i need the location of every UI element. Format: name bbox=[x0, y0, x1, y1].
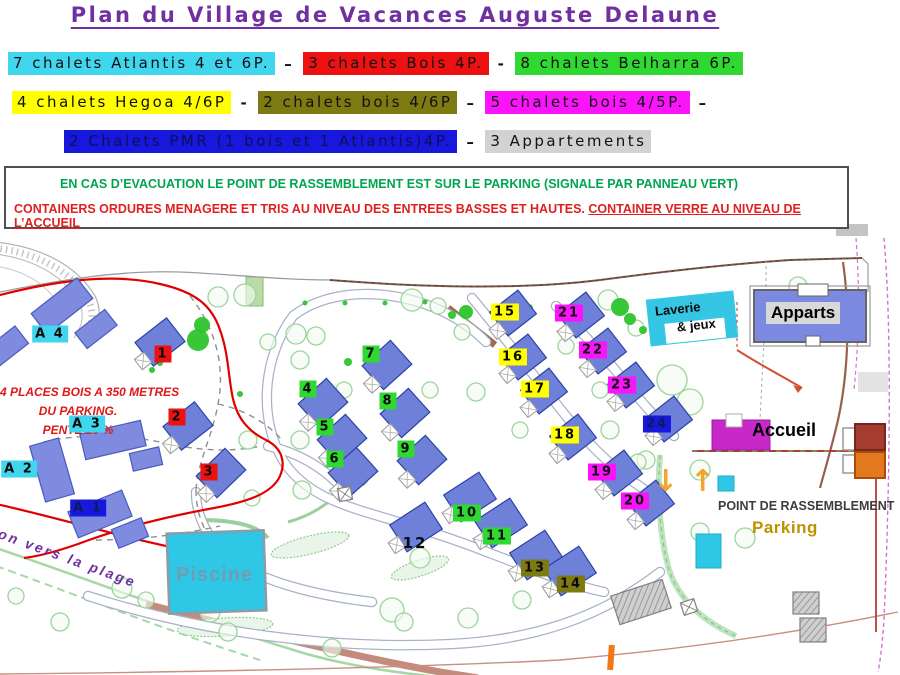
tree bbox=[512, 422, 528, 438]
legend-item: 8 chalets Belharra 6P. bbox=[515, 52, 743, 75]
legend-separator: – bbox=[466, 94, 476, 112]
chalet-marker-9: 9 bbox=[397, 441, 414, 458]
wood-places-note-line1: 4 PLACES BOIS A 350 METRES bbox=[0, 383, 156, 402]
notice-box: EN CAS D’EVACUATION LE POINT DE RASSEMBL… bbox=[4, 166, 849, 229]
tree bbox=[208, 287, 228, 307]
legend-item: 3 Appartements bbox=[485, 130, 651, 153]
page: Plan du Village de Vacances Auguste Dela… bbox=[0, 0, 900, 675]
legend-item: 2 Chalets PMR (1 bois et 1 Atlantis)4P. bbox=[64, 130, 457, 153]
chalet-marker-15: 15 bbox=[491, 304, 519, 321]
tree bbox=[458, 608, 478, 628]
legend-separator: – bbox=[699, 94, 709, 112]
chalet-marker-12: 12 bbox=[400, 533, 431, 553]
shrub bbox=[448, 311, 456, 319]
shrub bbox=[624, 313, 636, 325]
shrub bbox=[611, 298, 629, 316]
chalet-building bbox=[129, 447, 162, 471]
small-pool-2 bbox=[718, 476, 734, 491]
tree bbox=[513, 591, 531, 609]
tree bbox=[454, 324, 470, 340]
chalet-marker-5: 5 bbox=[316, 419, 333, 436]
containers-notice: CONTAINERS ORDURES MENAGERE ET TRIS AU N… bbox=[14, 202, 847, 230]
outbuilding bbox=[800, 618, 826, 642]
shrub bbox=[639, 326, 647, 334]
chalet-marker-22: 22 bbox=[579, 342, 607, 359]
legend-row-2: 4 chalets Hegoa 4/6P-2 chalets bois 4/6P… bbox=[12, 91, 709, 114]
chalet-marker-13: 13 bbox=[521, 560, 549, 577]
tree bbox=[592, 382, 608, 398]
legend-row-3: 2 Chalets PMR (1 bois et 1 Atlantis)4P.–… bbox=[64, 130, 651, 153]
tree bbox=[323, 639, 341, 657]
chalet-marker-4: 4 bbox=[299, 381, 316, 398]
chalet-marker-16: 16 bbox=[499, 349, 527, 366]
tree bbox=[291, 351, 309, 369]
chalet-marker-A3: A 3 bbox=[69, 416, 105, 433]
chalet-marker-8: 8 bbox=[379, 393, 396, 410]
shrub bbox=[303, 301, 308, 306]
tree bbox=[51, 613, 69, 631]
legend-item: 2 chalets bois 4/6P bbox=[258, 91, 457, 114]
tree bbox=[467, 383, 485, 401]
tree bbox=[601, 421, 619, 439]
legend-separator: – bbox=[284, 55, 294, 73]
chalet-marker-18: 18 bbox=[551, 427, 579, 444]
arrow-up-icon: ↑ bbox=[690, 464, 715, 499]
chalet-marker-23: 23 bbox=[608, 377, 636, 394]
chalet-marker-20: 20 bbox=[621, 493, 649, 510]
legend-item: 4 chalets Hegoa 4/6P bbox=[12, 91, 231, 114]
chalet-marker-10: 10 bbox=[453, 505, 481, 522]
shrub bbox=[237, 391, 243, 397]
legend-row-1: 7 chalets Atlantis 4 et 6P.–3 chalets Bo… bbox=[8, 52, 743, 75]
page-title: Plan du Village de Vacances Auguste Dela… bbox=[0, 3, 790, 27]
outbuilding bbox=[611, 579, 672, 624]
chalet-marker-17: 17 bbox=[521, 381, 549, 398]
chalet-building bbox=[0, 326, 29, 368]
chalet-marker-A2: A 2 bbox=[1, 461, 37, 478]
tree bbox=[307, 327, 325, 345]
outbuilding bbox=[337, 486, 352, 501]
containers-notice-main: CONTAINERS ORDURES MENAGERE ET TRIS AU N… bbox=[14, 202, 588, 216]
chalet-marker-A4: A 4 bbox=[32, 326, 68, 343]
tree bbox=[395, 613, 413, 631]
chalet-marker-14: 14 bbox=[557, 576, 585, 593]
reception-label: Accueil bbox=[752, 420, 816, 441]
parking-label: Parking bbox=[752, 518, 818, 538]
legend-separator: – bbox=[466, 133, 476, 151]
tree bbox=[260, 334, 276, 350]
chalet-marker-1: 1 bbox=[154, 346, 171, 363]
outbuilding bbox=[793, 592, 819, 614]
tree bbox=[286, 324, 306, 344]
tree bbox=[8, 588, 24, 604]
tree bbox=[219, 623, 237, 641]
chalet-marker-3: 3 bbox=[200, 464, 217, 481]
legend-item: 5 chalets bois 4/5P. bbox=[485, 91, 689, 114]
assembly-point-label: POINT DE RASSEMBLEMENT bbox=[718, 499, 894, 513]
tree bbox=[138, 592, 154, 608]
laundry-label-line2: & jeux bbox=[676, 313, 737, 334]
chalet-marker-19: 19 bbox=[588, 464, 616, 481]
tree bbox=[657, 365, 687, 395]
evacuation-notice: EN CAS D’EVACUATION LE POINT DE RASSEMBL… bbox=[60, 177, 847, 191]
shrub bbox=[383, 301, 388, 306]
chalet-building bbox=[75, 309, 117, 348]
tree bbox=[401, 289, 423, 311]
chalet-marker-11: 11 bbox=[483, 528, 511, 545]
chalet-marker-6: 6 bbox=[326, 451, 343, 468]
shrub bbox=[149, 367, 155, 373]
legend-separator: - bbox=[498, 55, 507, 73]
shrub bbox=[423, 300, 428, 305]
tree bbox=[293, 481, 311, 499]
tree bbox=[234, 284, 256, 306]
shrub bbox=[343, 301, 348, 306]
arrow-down-icon: ↓ bbox=[653, 464, 678, 499]
chalet-marker-24: 24 bbox=[643, 416, 671, 433]
legend-separator: - bbox=[240, 94, 249, 112]
tree bbox=[422, 382, 438, 398]
chalet-marker-21: 21 bbox=[555, 305, 583, 322]
legend-item: 3 chalets Bois 4P. bbox=[303, 52, 488, 75]
chalet-marker-7: 7 bbox=[362, 346, 379, 363]
shrub bbox=[459, 305, 473, 319]
apartments-label: Apparts bbox=[766, 302, 840, 324]
small-pool bbox=[696, 534, 721, 568]
shrub bbox=[344, 358, 352, 366]
tree bbox=[291, 431, 309, 449]
gate-marker bbox=[607, 645, 615, 670]
pool-label: Piscine bbox=[176, 564, 253, 587]
chalet-marker-2: 2 bbox=[168, 409, 185, 426]
chalet-marker-A1: A 1 bbox=[70, 500, 106, 517]
laundry-games-label: Laverie & jeux bbox=[646, 291, 738, 347]
shrub bbox=[187, 329, 209, 351]
tree bbox=[430, 298, 446, 314]
legend-item: 7 chalets Atlantis 4 et 6P. bbox=[8, 52, 275, 75]
